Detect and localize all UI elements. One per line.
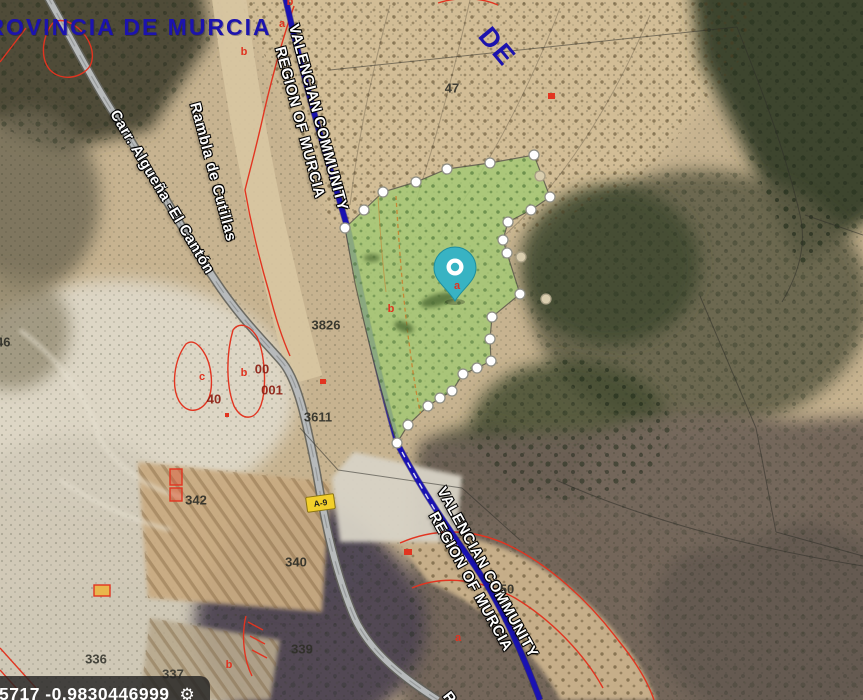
parcel-vertex-handle[interactable]: [485, 334, 495, 344]
parcel-vertex-handle[interactable]: [423, 401, 433, 411]
parcel-vertex-handle[interactable]: [340, 223, 350, 233]
map-canvas[interactable]: [0, 0, 863, 700]
parcel-vertex-handle[interactable]: [472, 363, 482, 373]
parcel-vertex-handle[interactable]: [411, 177, 421, 187]
parcel-vertex-handle[interactable]: [529, 150, 539, 160]
coordinates-statusbar: 5717 -0.9830446999 ⚙: [0, 676, 210, 700]
parcel-vertex-handle[interactable]: [378, 187, 388, 197]
parcel-vertex-handle[interactable]: [442, 164, 452, 174]
parcel-vertex-handle[interactable]: [498, 235, 508, 245]
parcel-vertex-handle[interactable]: [535, 171, 545, 181]
parcel-vertex-handle[interactable]: [487, 312, 497, 322]
parcel-vertex-handle[interactable]: [545, 192, 555, 202]
parcel-vertex-handle[interactable]: [435, 393, 445, 403]
parcel-vertex-handle[interactable]: [447, 386, 457, 396]
parcel-vertex-handle[interactable]: [392, 438, 402, 448]
parcel-vertex-handle[interactable]: [526, 205, 536, 215]
parcel-vertex-handle[interactable]: [403, 420, 413, 430]
parcel-vertex-handle[interactable]: [541, 294, 551, 304]
parcel-vertex-handle[interactable]: [502, 248, 512, 258]
parcel-vertex-handle[interactable]: [359, 205, 369, 215]
parcel-vertex-handle[interactable]: [516, 252, 526, 262]
parcel-vertex-handle[interactable]: [458, 369, 468, 379]
parcel-vertex-handle[interactable]: [515, 289, 525, 299]
coordinates-text: 5717 -0.9830446999: [0, 684, 170, 700]
parcel-vertex-handle[interactable]: [503, 217, 513, 227]
parcel-vertex-handle[interactable]: [485, 158, 495, 168]
map-viewport[interactable]: PROVINCIA DE MURCIA DE VALENCIAN COMMUNI…: [0, 0, 863, 700]
parcel-vertex-handle[interactable]: [486, 356, 496, 366]
pin-hole: [451, 263, 459, 271]
gear-icon[interactable]: ⚙: [180, 684, 195, 700]
